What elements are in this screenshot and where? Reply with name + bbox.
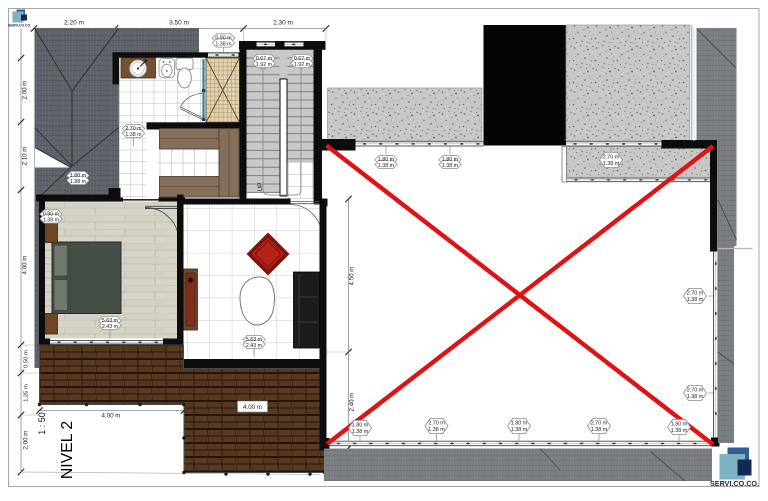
svg-text:2.70 m: 2.70 m bbox=[428, 420, 445, 426]
svg-text:1.38 m: 1.38 m bbox=[70, 179, 87, 185]
svg-text:0.50 m: 0.50 m bbox=[24, 350, 30, 368]
svg-text:3.50 m: 3.50 m bbox=[169, 20, 189, 27]
svg-text:1.38 m: 1.38 m bbox=[428, 427, 445, 433]
svg-text:1.25 m: 1.25 m bbox=[24, 384, 30, 402]
svg-text:1.80 m: 1.80 m bbox=[671, 421, 688, 427]
svg-text:4.00 m: 4.00 m bbox=[22, 256, 29, 275]
svg-text:1.38 m: 1.38 m bbox=[687, 297, 704, 303]
svg-text:NIVEL 2: NIVEL 2 bbox=[59, 421, 76, 479]
svg-text:2.43 m: 2.43 m bbox=[246, 343, 263, 349]
svg-text:2.70 m: 2.70 m bbox=[687, 387, 704, 393]
svg-text:1.80 m: 1.80 m bbox=[352, 422, 369, 428]
svg-text:2.70 m: 2.70 m bbox=[591, 420, 608, 426]
svg-text:2.30 m: 2.30 m bbox=[273, 20, 293, 27]
svg-text:1.38 m: 1.38 m bbox=[603, 161, 620, 167]
svg-text:1 : 50: 1 : 50 bbox=[37, 412, 47, 435]
svg-text:SERVI.CO.CO.: SERVI.CO.CO. bbox=[8, 24, 31, 28]
svg-text:2.00 m: 2.00 m bbox=[23, 431, 30, 450]
svg-text:2.70 m: 2.70 m bbox=[603, 154, 620, 160]
svg-text:1.92 m: 1.92 m bbox=[294, 62, 311, 68]
svg-text:4.00 m: 4.00 m bbox=[243, 404, 262, 411]
svg-text:2.70 m: 2.70 m bbox=[687, 290, 704, 296]
svg-text:1.80 m: 1.80 m bbox=[511, 420, 528, 426]
svg-text:1.38 m: 1.38 m bbox=[511, 427, 528, 433]
svg-text:1.38 m: 1.38 m bbox=[687, 394, 704, 400]
svg-text:UP: UP bbox=[257, 182, 264, 191]
svg-text:1.38 m: 1.38 m bbox=[43, 217, 60, 223]
svg-text:2.43 m: 2.43 m bbox=[102, 324, 119, 330]
svg-text:2.10 m: 2.10 m bbox=[22, 147, 29, 166]
svg-text:4.50 m: 4.50 m bbox=[349, 267, 356, 286]
svg-text:1.38 m: 1.38 m bbox=[215, 41, 232, 47]
svg-text:1.38 m: 1.38 m bbox=[125, 132, 142, 138]
svg-text:2.40 m: 2.40 m bbox=[349, 393, 356, 412]
svg-text:1.38 m: 1.38 m bbox=[671, 428, 688, 434]
svg-text:1.38 m: 1.38 m bbox=[352, 429, 369, 435]
svg-text:1.38 m: 1.38 m bbox=[442, 163, 459, 169]
svg-text:1.38 m: 1.38 m bbox=[591, 427, 608, 433]
svg-text:2.00 m: 2.00 m bbox=[22, 81, 29, 100]
svg-text:SERVI.CO.CO.: SERVI.CO.CO. bbox=[710, 479, 759, 488]
svg-text:1.38 m: 1.38 m bbox=[378, 163, 395, 169]
svg-text:1.92 m: 1.92 m bbox=[256, 62, 273, 68]
svg-text:2.20 m: 2.20 m bbox=[64, 20, 84, 27]
svg-text:4.00 m: 4.00 m bbox=[102, 413, 121, 420]
